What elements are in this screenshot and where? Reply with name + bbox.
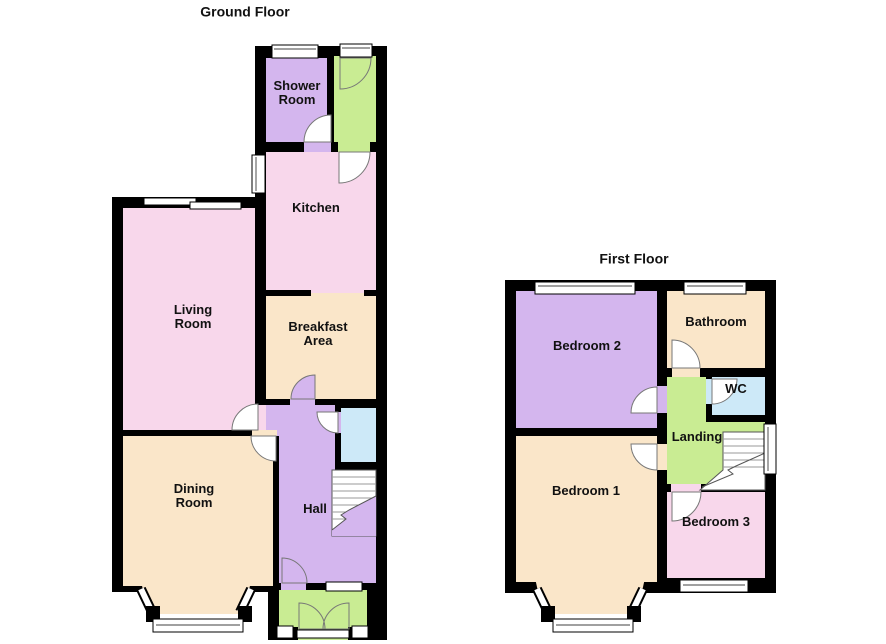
label-kitchen: Kitchen [292, 201, 340, 215]
label-dining-room: Dining Room [164, 482, 224, 510]
ground-floor-title: Ground Floor [200, 4, 289, 19]
label-wc: WC [725, 382, 747, 396]
opening-shower [304, 142, 331, 152]
opening-wc [706, 379, 712, 404]
label-living-room: Living Room [163, 303, 223, 331]
opening-bedroom2 [657, 386, 667, 413]
opening-bedroom1 [657, 444, 667, 470]
label-bedroom3: Bedroom 3 [682, 515, 750, 529]
opening-bedroom3 [671, 484, 701, 492]
opening-kitchen-breakfast [311, 290, 364, 293]
label-bedroom1: Bedroom 1 [552, 484, 620, 498]
room-dining [123, 436, 273, 586]
opening-hall-porch [281, 583, 306, 590]
room-porch [279, 590, 367, 627]
opening-breakfast-hall [290, 399, 315, 405]
opening-kitchen-breakfast [311, 293, 364, 296]
label-breakfast-area: Breakfast Area [276, 320, 360, 348]
label-landing: Landing [672, 430, 723, 444]
label-shower-room: Shower Room [262, 79, 332, 107]
first-floor-title: First Floor [599, 251, 668, 266]
opening-dining [252, 430, 277, 436]
opening-entry-kitchen [338, 142, 370, 152]
floorplan-canvas: Ground Floor First Floor Shower Room Kit… [0, 0, 886, 644]
floorplan-drawing [0, 0, 886, 644]
first-floor-plan [505, 280, 776, 632]
label-hall: Hall [303, 502, 327, 516]
room-store-cupboard [341, 408, 376, 462]
label-bathroom: Bathroom [685, 315, 746, 329]
opening-bathroom [672, 368, 700, 377]
ground-stairs [332, 470, 376, 536]
label-bedroom2: Bedroom 2 [553, 339, 621, 353]
